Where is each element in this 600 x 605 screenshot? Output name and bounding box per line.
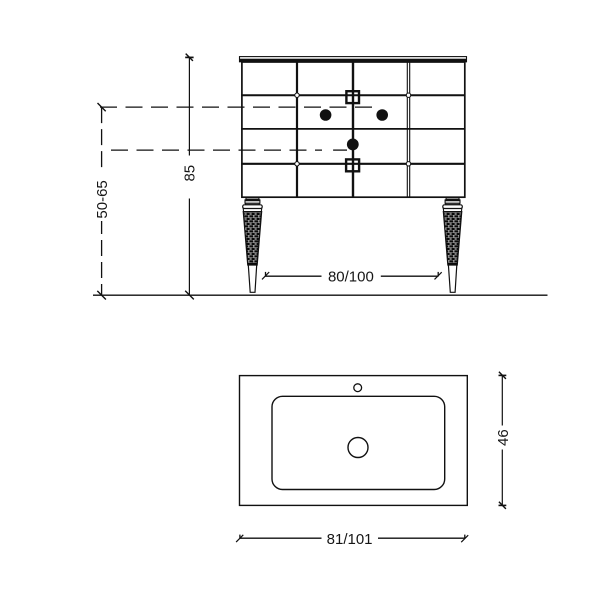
svg-text:80/100: 80/100 — [328, 268, 374, 285]
svg-text:85: 85 — [182, 165, 199, 182]
svg-text:81/101: 81/101 — [327, 531, 373, 548]
svg-text:46: 46 — [495, 429, 512, 446]
svg-text:50-65: 50-65 — [94, 180, 111, 218]
